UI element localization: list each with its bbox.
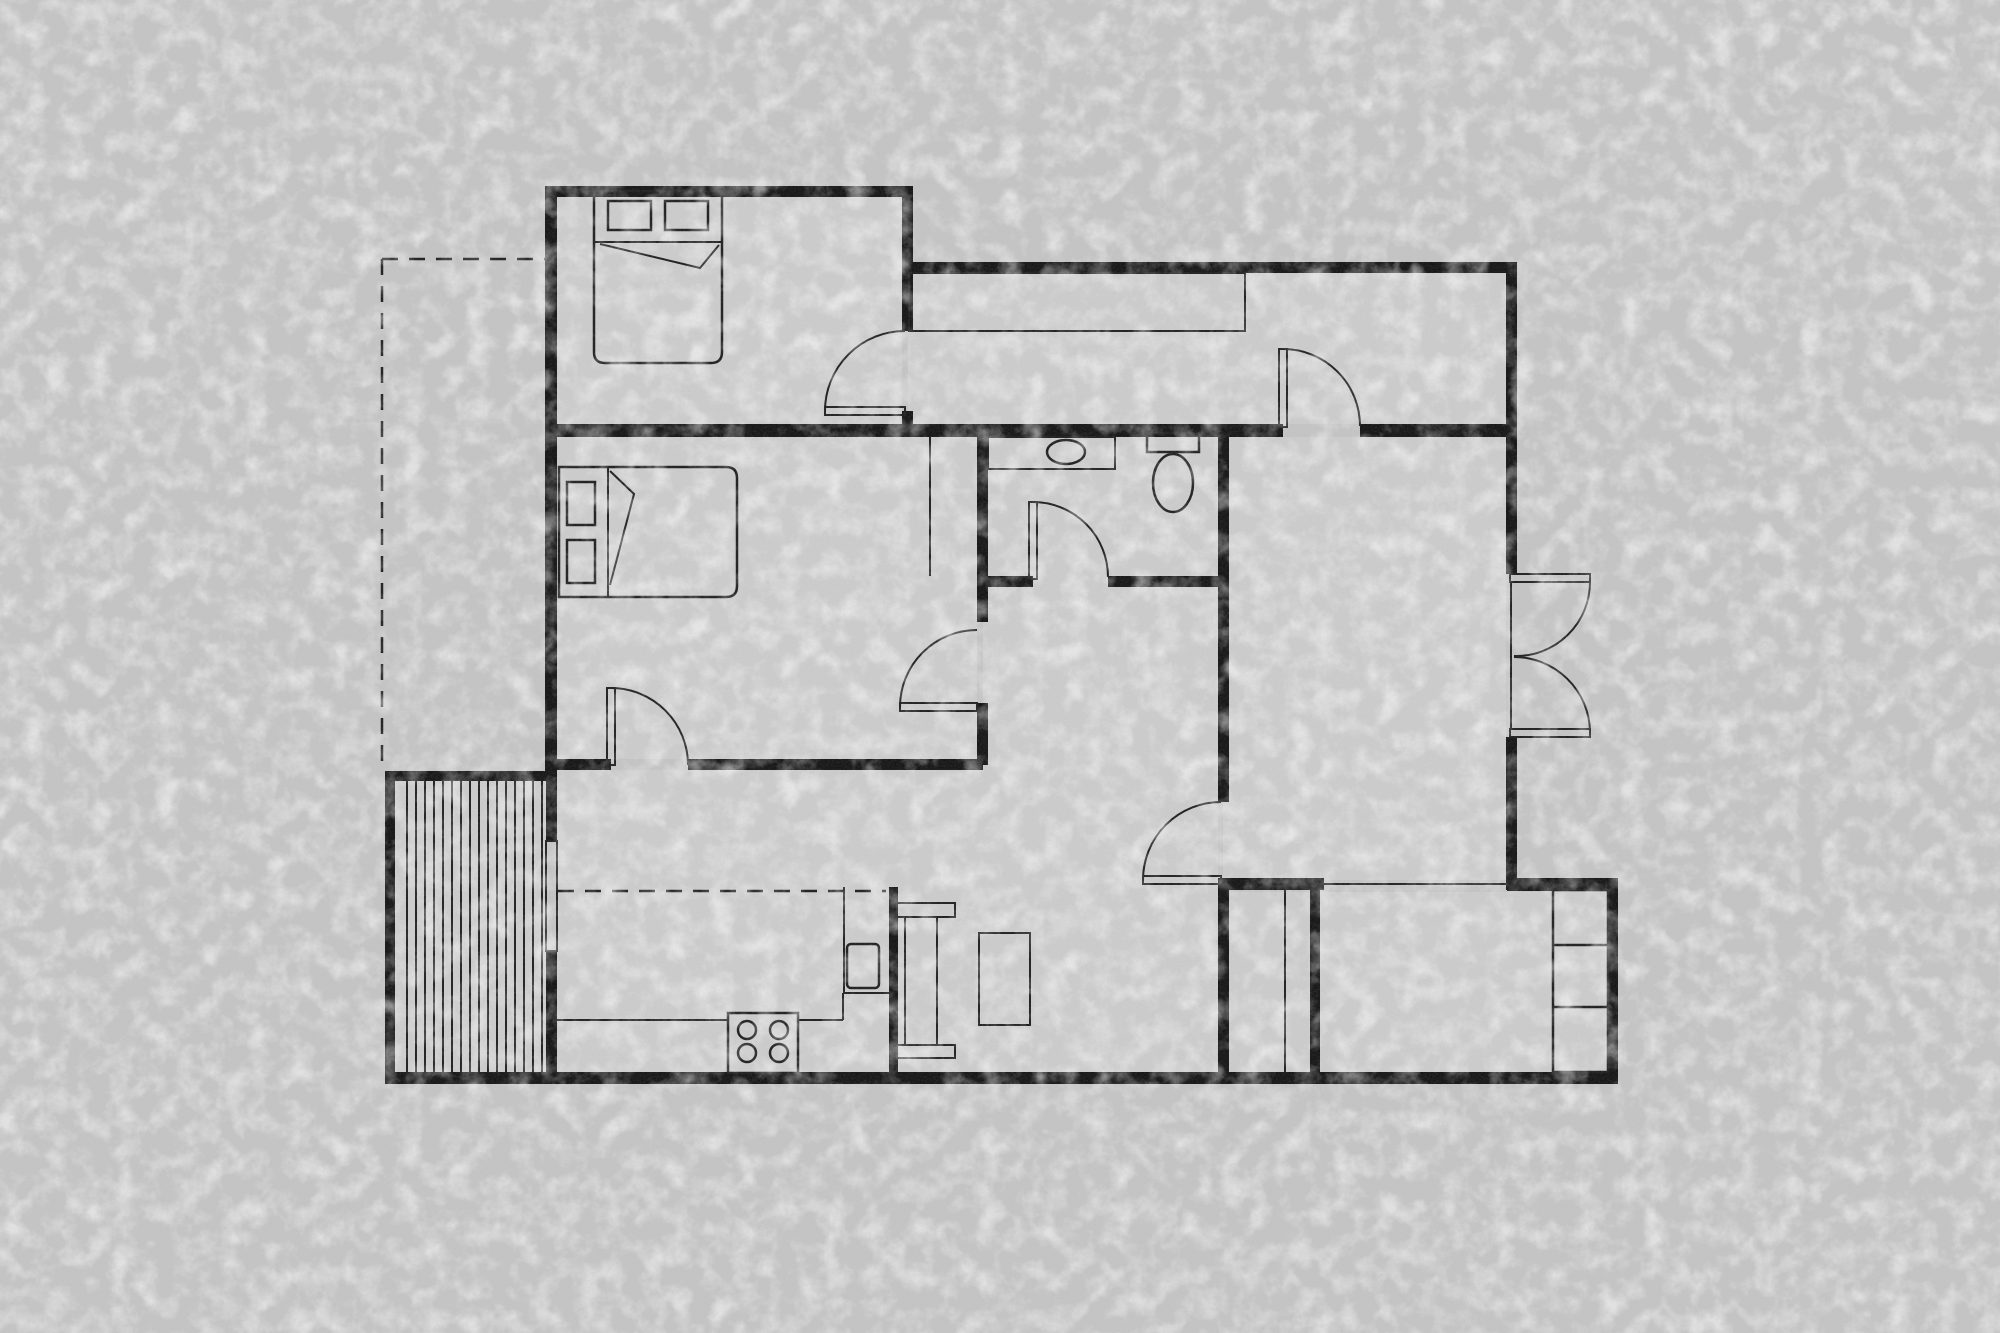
floor-plan-canvas [0, 0, 2000, 1333]
texture-fine-grain [0, 0, 2000, 1333]
floor-plan-page [0, 0, 2000, 1333]
